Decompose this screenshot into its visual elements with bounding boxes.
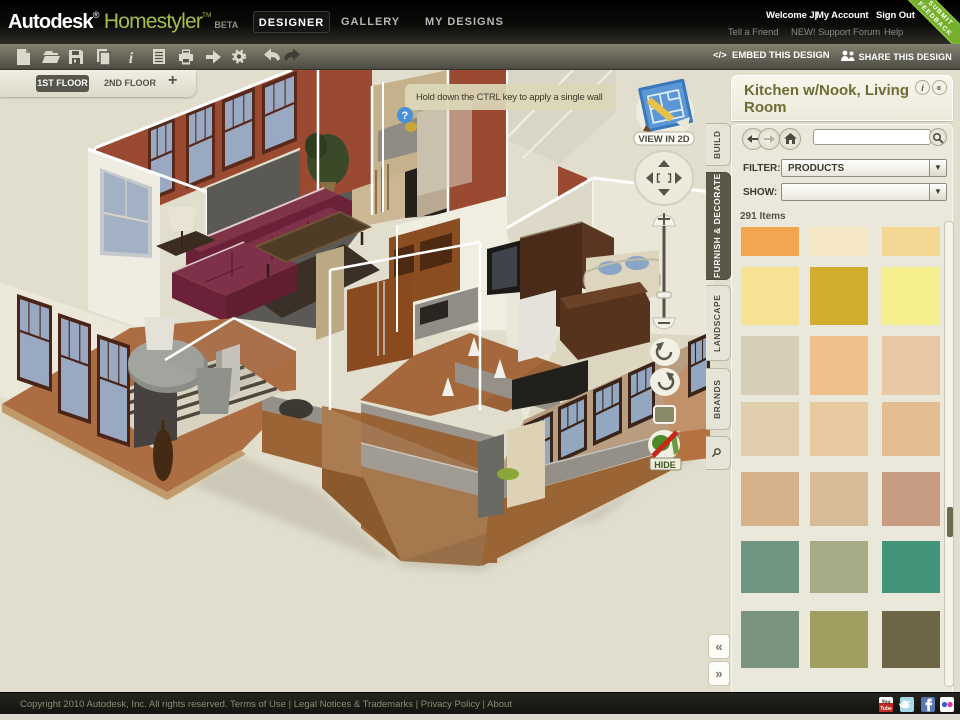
svg-text:HIDE: HIDE xyxy=(654,460,676,470)
svg-text:i: i xyxy=(129,50,134,67)
svg-text:You: You xyxy=(881,700,890,706)
svg-text:Hold down the CTRL key to appl: Hold down the CTRL key to apply a single… xyxy=(416,92,603,103)
svg-text:VIEW IN 2D: VIEW IN 2D xyxy=(638,134,689,145)
svg-text:?: ? xyxy=(402,110,409,122)
svg-text:Tube: Tube xyxy=(880,706,892,712)
